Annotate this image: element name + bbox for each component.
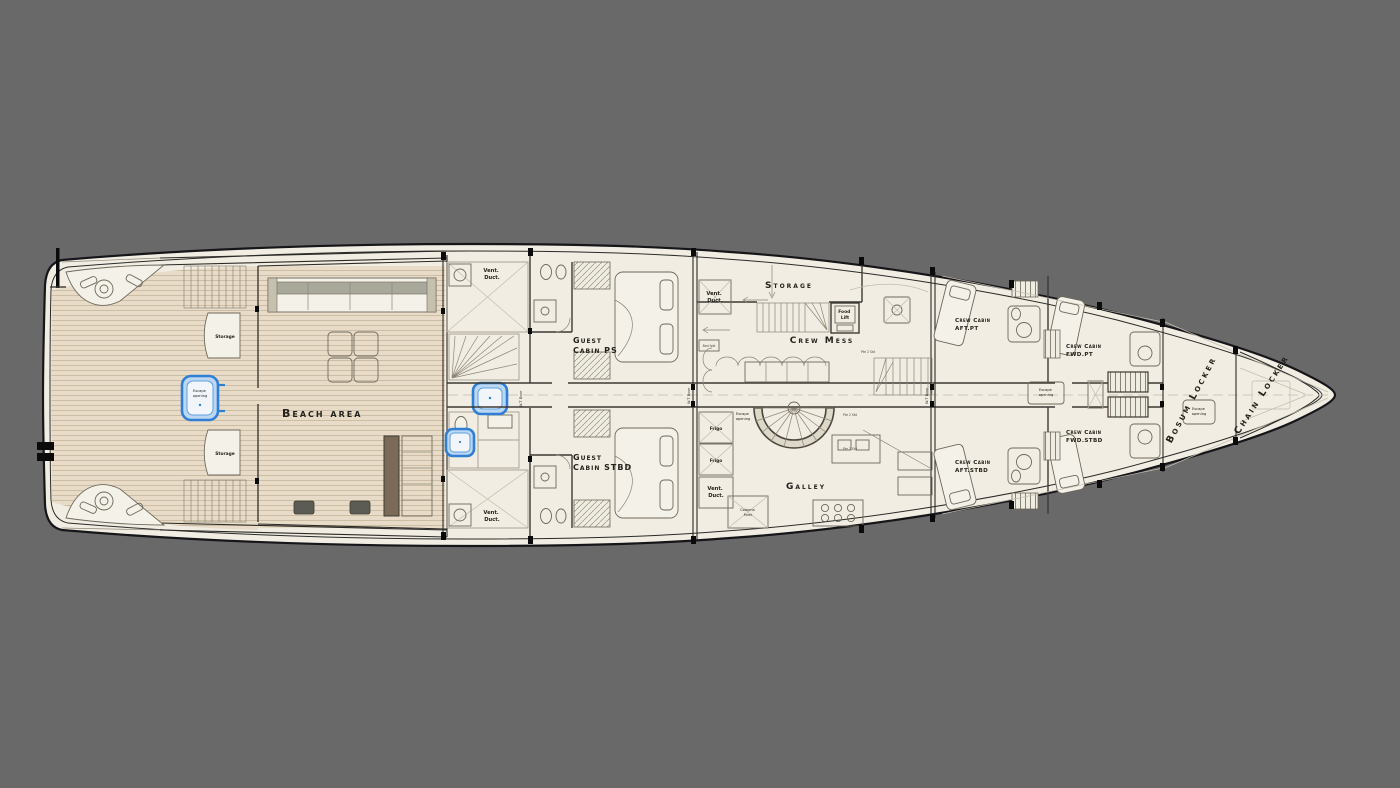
- stern-ladder-port: [37, 442, 54, 450]
- escape-platform-label: Escape opening: [193, 389, 208, 398]
- escape-hatch-corridor[interactable]: [473, 383, 507, 414]
- escape-bow-label: Escape opening: [1192, 407, 1207, 416]
- stern-flag-pole: [56, 248, 60, 288]
- crew-aft-stbd-ladder: [1012, 493, 1038, 509]
- escape-galley-label: Escape opening: [736, 412, 751, 421]
- guest-ps-wardrobe: [574, 352, 610, 379]
- beach-speaker-stbd: [350, 501, 370, 514]
- vent-duct-label-3: Vent. Duct.: [707, 486, 724, 499]
- wt-door-label-2: W.T Door: [687, 387, 691, 404]
- wt-door-label-3: W.T Door: [925, 387, 929, 404]
- guest-bed-ps: [615, 272, 678, 362]
- crew-aft-pt-ladder: [1012, 281, 1038, 297]
- vent-duct-label-4: Vent. Duct.: [706, 291, 723, 304]
- yacht-lower-deck-plan: Storage Storage Escape opening: [0, 0, 1400, 788]
- deck-plan-canvas: Storage Storage Escape opening: [0, 0, 1400, 788]
- bed-fold-label: Bed fold: [703, 344, 716, 348]
- storage-pod-aft-port: Storage: [204, 313, 240, 358]
- beach-sofa: [268, 278, 436, 312]
- escape-crew-label: Escape opening: [1039, 388, 1054, 397]
- guest-stbd-closet: [574, 500, 610, 527]
- escape-hatch-platform[interactable]: Escape opening: [182, 376, 225, 420]
- crew-mess-label: Crew Mess: [790, 336, 855, 346]
- crew-fwd-stbd-wardrobe: [1044, 432, 1060, 460]
- guest-stbd-wardrobe: [574, 410, 610, 437]
- stair-note-1: Pte 2 Std: [861, 350, 875, 354]
- frigo-label-1: Frigo: [710, 426, 723, 432]
- vent-duct-label-2: Vent. Duct.: [483, 510, 500, 523]
- escape-hatch-day-head[interactable]: [446, 429, 474, 456]
- stern-ladder-stbd: [37, 453, 54, 461]
- stair-note-2: Pte 2 Std: [843, 413, 857, 417]
- crew-fwd-pt-wardrobe: [1044, 330, 1060, 358]
- guest-bed-stbd: [615, 428, 678, 518]
- vent-duct-label-1: Vent. Duct.: [483, 268, 500, 281]
- wt-door-label-1: W.T Door: [519, 390, 523, 407]
- beach-area-label: Beach area: [282, 407, 362, 420]
- galley-label: Galley: [786, 482, 826, 492]
- frigo-label-2: Frigo: [710, 458, 723, 464]
- platform-teak-deck: [51, 266, 258, 530]
- storage-pod-aft-stbd: Storage: [204, 430, 240, 475]
- guest-ps-closet: [574, 262, 610, 289]
- storage-aft-top-label: Storage: [215, 334, 235, 340]
- storage-aft-bottom-label: Storage: [215, 451, 235, 457]
- beach-speaker-port: [294, 501, 314, 514]
